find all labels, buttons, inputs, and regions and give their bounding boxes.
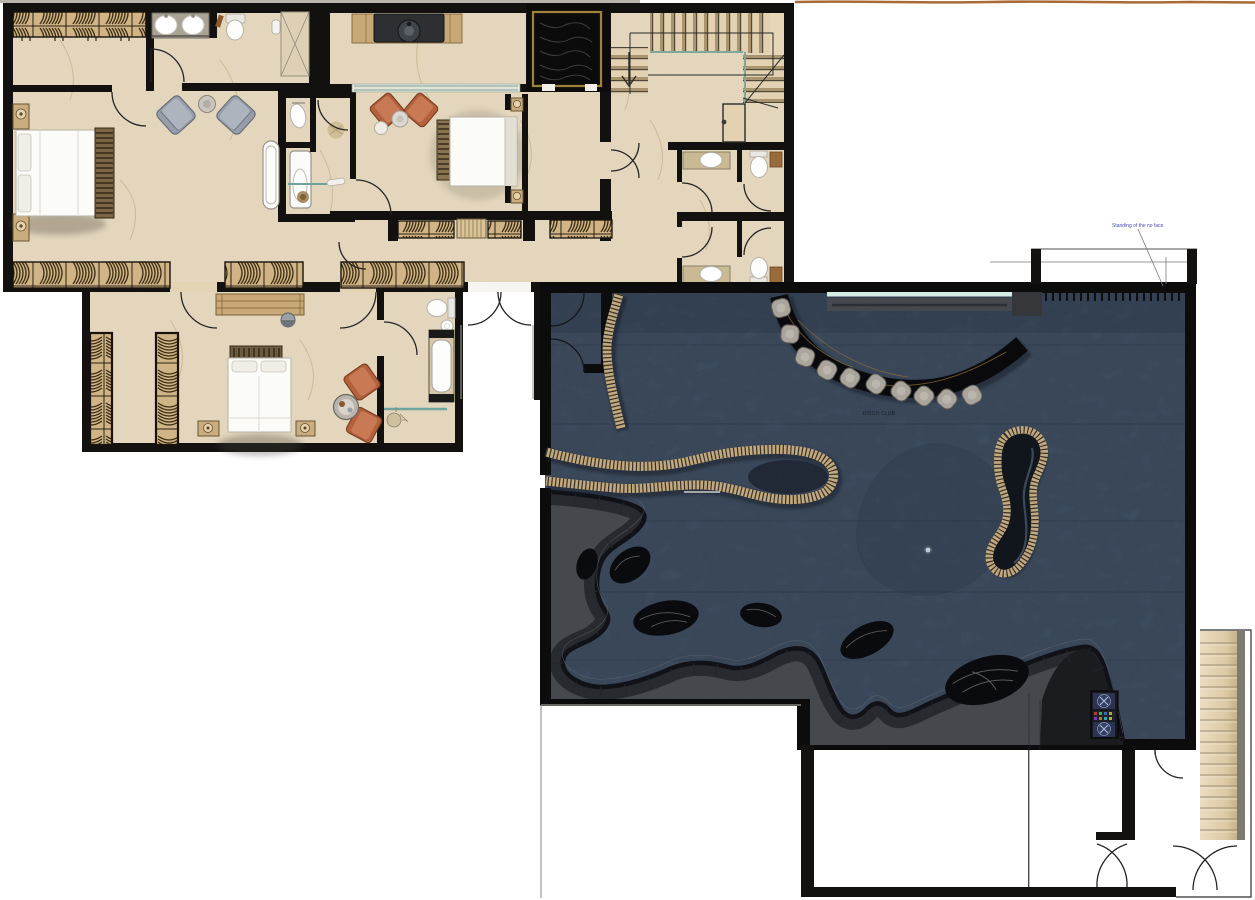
svg-text:Standing of the no face: Standing of the no face <box>1112 223 1164 229</box>
svg-text:DISCO CLUB: DISCO CLUB <box>863 411 896 417</box>
